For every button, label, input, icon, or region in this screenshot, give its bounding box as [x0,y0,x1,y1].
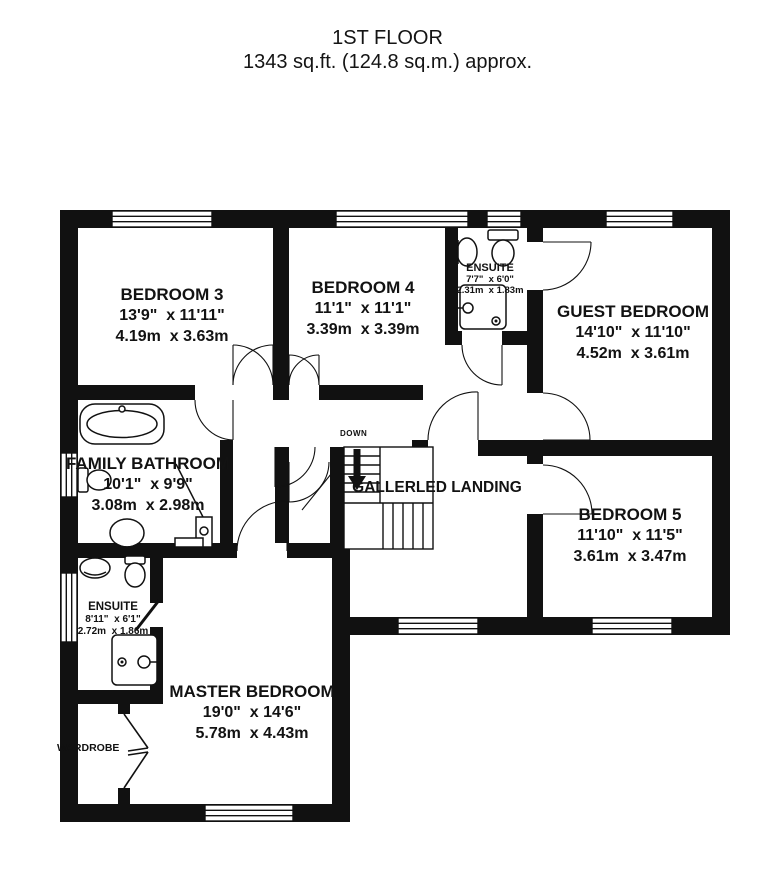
room-dims-metric: 4.19m x 3.63m [62,326,282,347]
room-dims-metric: 4.52m x 3.61m [523,343,743,364]
door-ensuite-top [462,345,502,385]
room-label-ensuite-top: ENSUITE 7'7" x 6'0" 2.31m x 1.83m [430,262,550,296]
wall [118,788,130,804]
room-dims-imperial: 11'1" x 11'1" [253,298,473,319]
room-label-landing: GALLERLED LANDING [327,479,547,497]
room-dims-metric: 3.61m x 3.47m [520,546,740,567]
door-guest-bottom [543,393,590,440]
wall [712,210,730,635]
window [487,211,521,227]
room-dims-imperial: 7'7" x 6'0" [430,274,550,285]
door-family-bathroom [195,400,233,440]
room-label-bedroom3: BEDROOM 3 13'9" x 11'11" 4.19m x 3.63m [62,284,282,347]
window [606,211,673,227]
room-label-wardrobe: WARDROBE [57,742,119,754]
room-dims-imperial: 10'1" x 9'9" [38,474,258,495]
room-dims-imperial: 13'9" x 11'11" [62,305,282,326]
window [336,211,468,227]
room-dims-metric: 5.78m x 4.43m [142,723,362,744]
room-dims-metric: 3.08m x 2.98m [38,495,258,516]
room-label-guest-bedroom: GUEST BEDROOM 14'10" x 11'10" 4.52m x 3.… [523,301,743,364]
stairs-down-label: DOWN [340,429,367,438]
window [205,805,293,821]
room-dims-imperial: 8'11" x 6'1" [43,614,183,626]
wall [478,440,730,456]
room-name: GUEST BEDROOM [523,301,743,322]
door-guest-top [543,242,591,290]
window [112,211,212,227]
wall [118,704,130,714]
sink-icon [80,558,110,578]
room-dims-imperial: 14'10" x 11'10" [523,322,743,343]
wall [527,456,543,464]
room-name: MASTER BEDROOM [142,681,362,702]
room-label-master-bedroom: MASTER BEDROOM 19'0" x 14'6" 5.78m x 4.4… [142,681,362,744]
shower-icon [112,635,157,685]
room-name: FAMILY BATHROOM [38,453,258,474]
toilet-icon [488,230,518,266]
room-name: GALLERLED LANDING [327,479,547,497]
toilet-icon [125,556,145,587]
room-label-bedroom5: BEDROOM 5 11'10" x 11'5" 3.61m x 3.47m [520,504,740,567]
floorplan-page: 1ST FLOOR 1343 sq.ft. (124.8 sq.m.) appr… [0,0,775,880]
door-bedroom3 [233,345,273,385]
room-name: BEDROOM 5 [520,504,740,525]
wall [319,385,423,400]
window [592,618,672,634]
room-label-family-bathroom: FAMILY BATHROOM 10'1" x 9'9" 3.08m x 2.9… [38,453,258,516]
room-dims-imperial: 19'0" x 14'6" [142,702,362,723]
room-name: ENSUITE [43,601,183,614]
wall [150,555,163,603]
bathtub-icon [80,404,164,444]
room-name: ENSUITE [430,262,550,274]
wall [78,385,195,400]
room-dims-metric: 2.31m x 1.83m [430,285,550,296]
room-name: BEDROOM 3 [62,284,282,305]
wall [330,447,344,548]
window [398,618,478,634]
wall [527,228,543,242]
door-corridor [428,392,478,440]
room-dims-metric: 3.39m x 3.39m [253,319,473,340]
room-dims-imperial: 11'10" x 11'5" [520,525,740,546]
staircase [344,447,433,549]
door-bedroom4 [289,355,319,385]
room-dims-metric: 2.72m x 1.86m [43,626,183,638]
room-label-ensuite-lower: ENSUITE 8'11" x 6'1" 2.72m x 1.86m [43,601,183,638]
sink-icon [110,519,144,547]
